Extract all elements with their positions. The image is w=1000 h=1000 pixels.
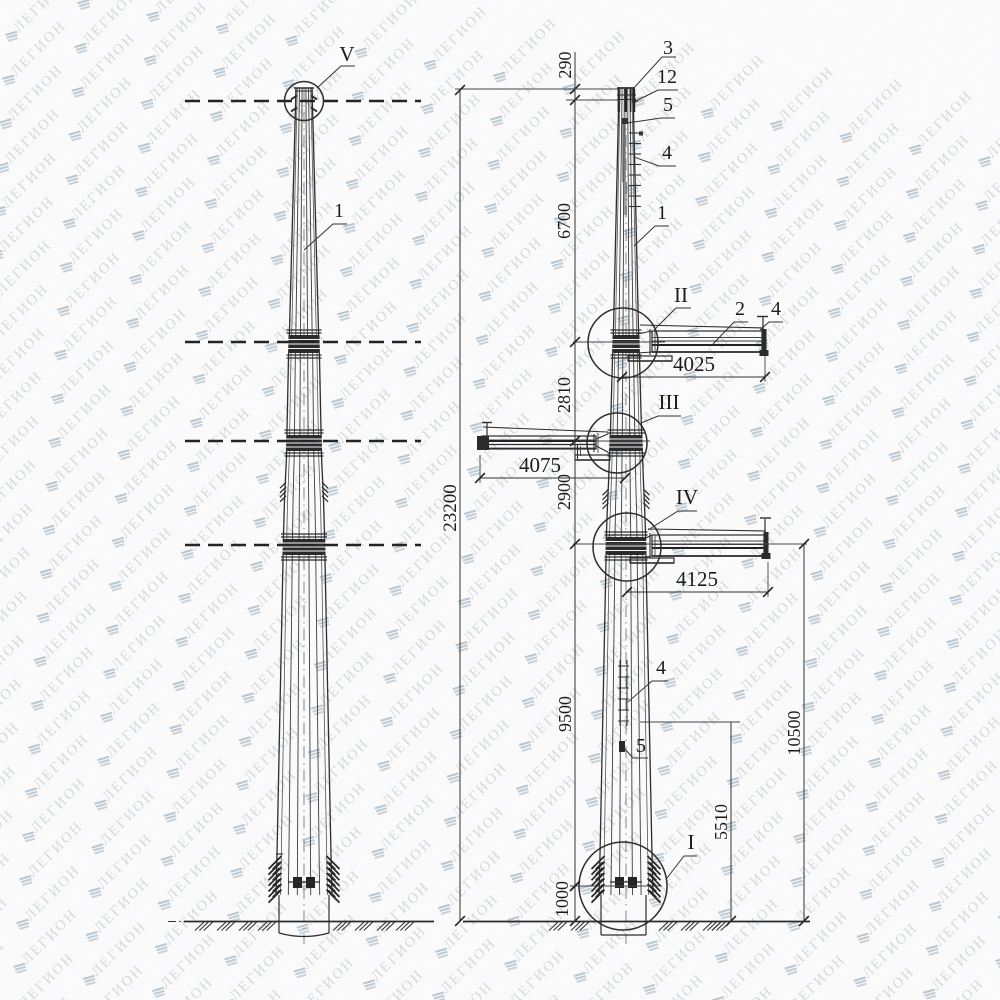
- svg-text:4075: 4075: [519, 453, 561, 477]
- svg-text:2900: 2900: [554, 474, 574, 510]
- svg-text:4: 4: [656, 657, 666, 679]
- svg-text:5: 5: [663, 94, 673, 116]
- svg-text:5510: 5510: [711, 804, 731, 840]
- svg-text:2810: 2810: [554, 377, 574, 413]
- svg-text:4025: 4025: [673, 352, 715, 376]
- svg-text:1000: 1000: [552, 881, 572, 917]
- svg-text:V: V: [339, 42, 354, 66]
- svg-text:12: 12: [657, 66, 677, 88]
- svg-text:10500: 10500: [784, 711, 804, 756]
- svg-text:1: 1: [334, 200, 344, 222]
- svg-text:I: I: [688, 830, 695, 854]
- svg-text:9500: 9500: [555, 696, 575, 732]
- svg-text:III: III: [659, 390, 680, 414]
- svg-text:5: 5: [636, 735, 646, 757]
- svg-text:2: 2: [735, 298, 745, 320]
- svg-text:4: 4: [662, 142, 672, 164]
- svg-text:4: 4: [771, 298, 781, 320]
- svg-text:IV: IV: [676, 485, 698, 509]
- svg-text:23200: 23200: [440, 484, 461, 532]
- svg-text:II: II: [674, 283, 688, 307]
- svg-text:4125: 4125: [676, 567, 718, 591]
- svg-text:290: 290: [555, 52, 575, 79]
- svg-text:6700: 6700: [554, 203, 574, 239]
- svg-text:3: 3: [663, 37, 673, 59]
- svg-text:1: 1: [657, 202, 667, 224]
